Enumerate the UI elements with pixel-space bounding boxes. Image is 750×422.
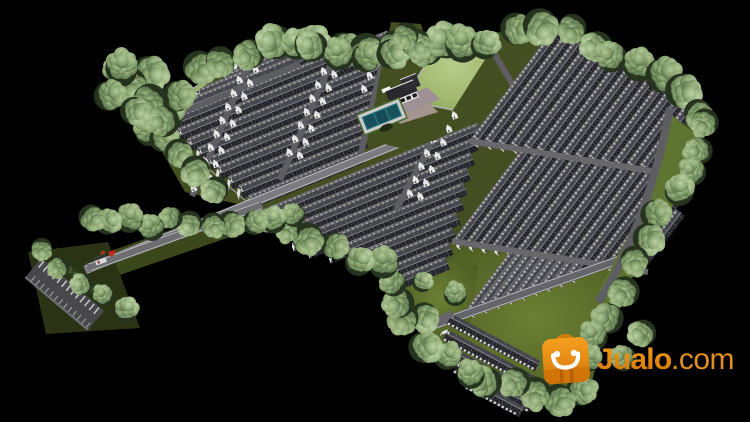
svg-text:Jualo: Jualo (597, 343, 672, 376)
svg-text:.com: .com (671, 343, 734, 376)
